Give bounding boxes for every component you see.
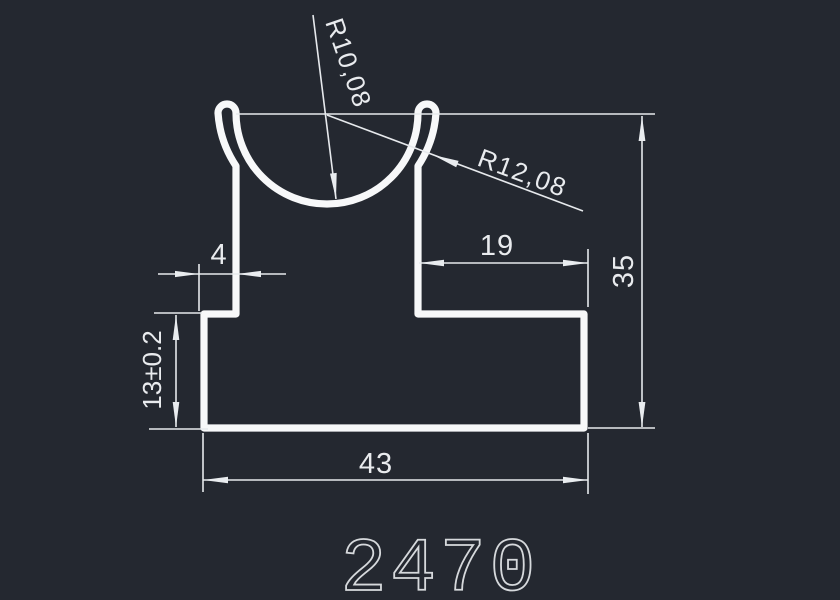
dim-total-height: 35 [588, 116, 655, 428]
arrowhead-right [563, 260, 588, 266]
arrowhead [433, 155, 459, 167]
dim-outer-radius-label: R12,08 [474, 143, 571, 204]
arrowhead-right [563, 477, 588, 483]
arrowhead-left-point [237, 271, 261, 277]
arrowhead-left [419, 260, 444, 266]
dim-left-step: 4 [158, 239, 286, 311]
arrowhead-left [203, 477, 228, 483]
dim-base-width: 43 [203, 433, 588, 494]
part-number: 2470 [341, 527, 539, 600]
dim-base-width-label: 43 [359, 448, 393, 480]
dim-base-height-label: 13±0.2 [137, 330, 167, 409]
arrowhead-down [639, 402, 646, 427]
profile-outline [204, 104, 584, 428]
dim-shoulder-width: 19 [419, 230, 588, 307]
arrowhead [330, 173, 337, 199]
drawing-viewport: 35 43 19 4 [0, 0, 840, 600]
dim-inner-radius-label: R10,08 [319, 14, 378, 112]
arrowhead-up [639, 116, 646, 141]
technical-drawing-canvas: 35 43 19 4 [0, 0, 840, 600]
dim-shoulder-width-label: 19 [480, 230, 514, 262]
dim-total-height-label: 35 [608, 254, 640, 288]
arrowhead-right-point [175, 271, 199, 277]
arrowhead-up [173, 315, 180, 340]
dim-inner-radius: R10,08 [313, 14, 378, 199]
arrowhead-down [173, 402, 180, 427]
dim-left-step-label: 4 [210, 239, 227, 271]
dim-base-height: 13±0.2 [137, 313, 208, 429]
